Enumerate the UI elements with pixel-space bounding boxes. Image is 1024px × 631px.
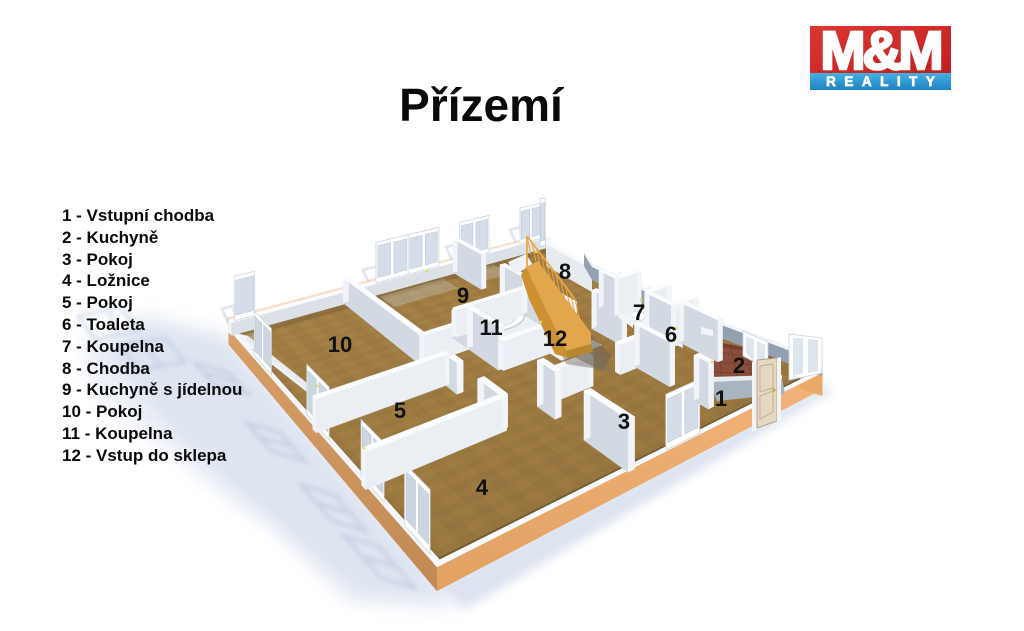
svg-text:8: 8 [559,259,571,284]
svg-text:10: 10 [328,332,352,357]
svg-text:3: 3 [618,409,630,434]
svg-text:9: 9 [457,283,469,308]
svg-text:2: 2 [733,353,745,378]
svg-text:6: 6 [665,322,677,347]
svg-text:4: 4 [476,475,489,500]
svg-text:11: 11 [479,315,502,340]
svg-text:1: 1 [715,386,727,411]
svg-text:7: 7 [633,300,645,325]
svg-text:5: 5 [394,398,406,423]
svg-text:12: 12 [543,326,567,351]
